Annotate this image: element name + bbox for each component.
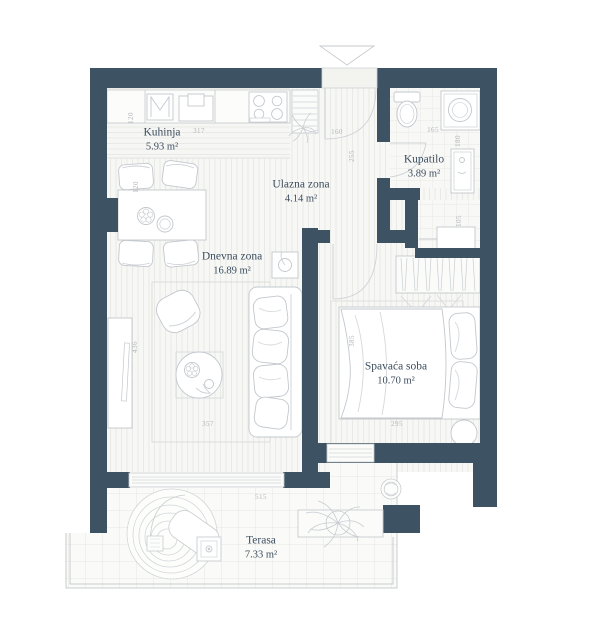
vanity [451,149,474,193]
room-area: 10.70 m² [365,375,427,389]
dimension-label: 515 [255,493,267,501]
floorplan-drawing [0,0,600,641]
room-area: 4.14 m² [272,193,329,207]
tv-sideboard [108,318,132,428]
room-label-terasa: Terasa 7.33 m² [245,534,277,563]
room-label-spavaca-soba: Spavaća soba 10.70 m² [365,360,427,389]
room-name: Kuhinja [143,126,180,141]
dimension-label: 357 [202,420,214,428]
entry-shelf [292,90,318,133]
room-area: 5.93 m² [143,141,180,155]
dimension-label: 160 [331,128,343,136]
room-name: Spavaća soba [365,360,427,375]
room-name: Kupatilo [404,153,444,168]
dimension-label: 120 [132,181,140,193]
dimension-label: 295 [391,420,403,428]
dimension-label: 180 [454,135,462,147]
dimension-label: 120 [127,112,135,124]
side-table [272,252,298,278]
room-label-dnevna-zona: Dnevna zona 16.89 m² [202,250,262,279]
floor-plan: Kuhinja 5.93 m² Ulazna zona 4.14 m² Kupa… [0,0,600,641]
room-label-kuhinja: Kuhinja 5.93 m² [143,126,180,155]
room-name: Ulazna zona [272,178,329,193]
dimension-label: 165 [427,126,439,134]
dimension-label: 255 [348,150,356,162]
sofa [249,287,302,437]
room-area: 16.89 m² [202,265,262,279]
room-name: Dnevna zona [202,250,262,265]
room-area: 7.33 m² [245,549,277,563]
terrace-table [197,537,221,561]
room-label-kupatilo: Kupatilo 3.89 m² [404,153,444,182]
dimension-label: 317 [193,127,205,135]
room-name: Terasa [245,534,277,549]
coffee-table [176,352,223,398]
room-label-ulazna-zona: Ulazna zona 4.14 m² [272,178,329,207]
entrance-arrow [320,46,374,65]
stove [249,92,287,122]
dimension-label: 105 [455,215,463,227]
washing-machine [441,91,480,130]
cutting-board [179,94,213,121]
dimension-label: 385 [348,335,356,347]
ottoman [451,420,477,446]
dining-table [118,190,206,240]
room-area: 3.89 m² [404,168,444,182]
decor-plate [381,479,401,499]
dimension-label: 436 [131,341,139,353]
kitchen-sink [147,94,173,120]
